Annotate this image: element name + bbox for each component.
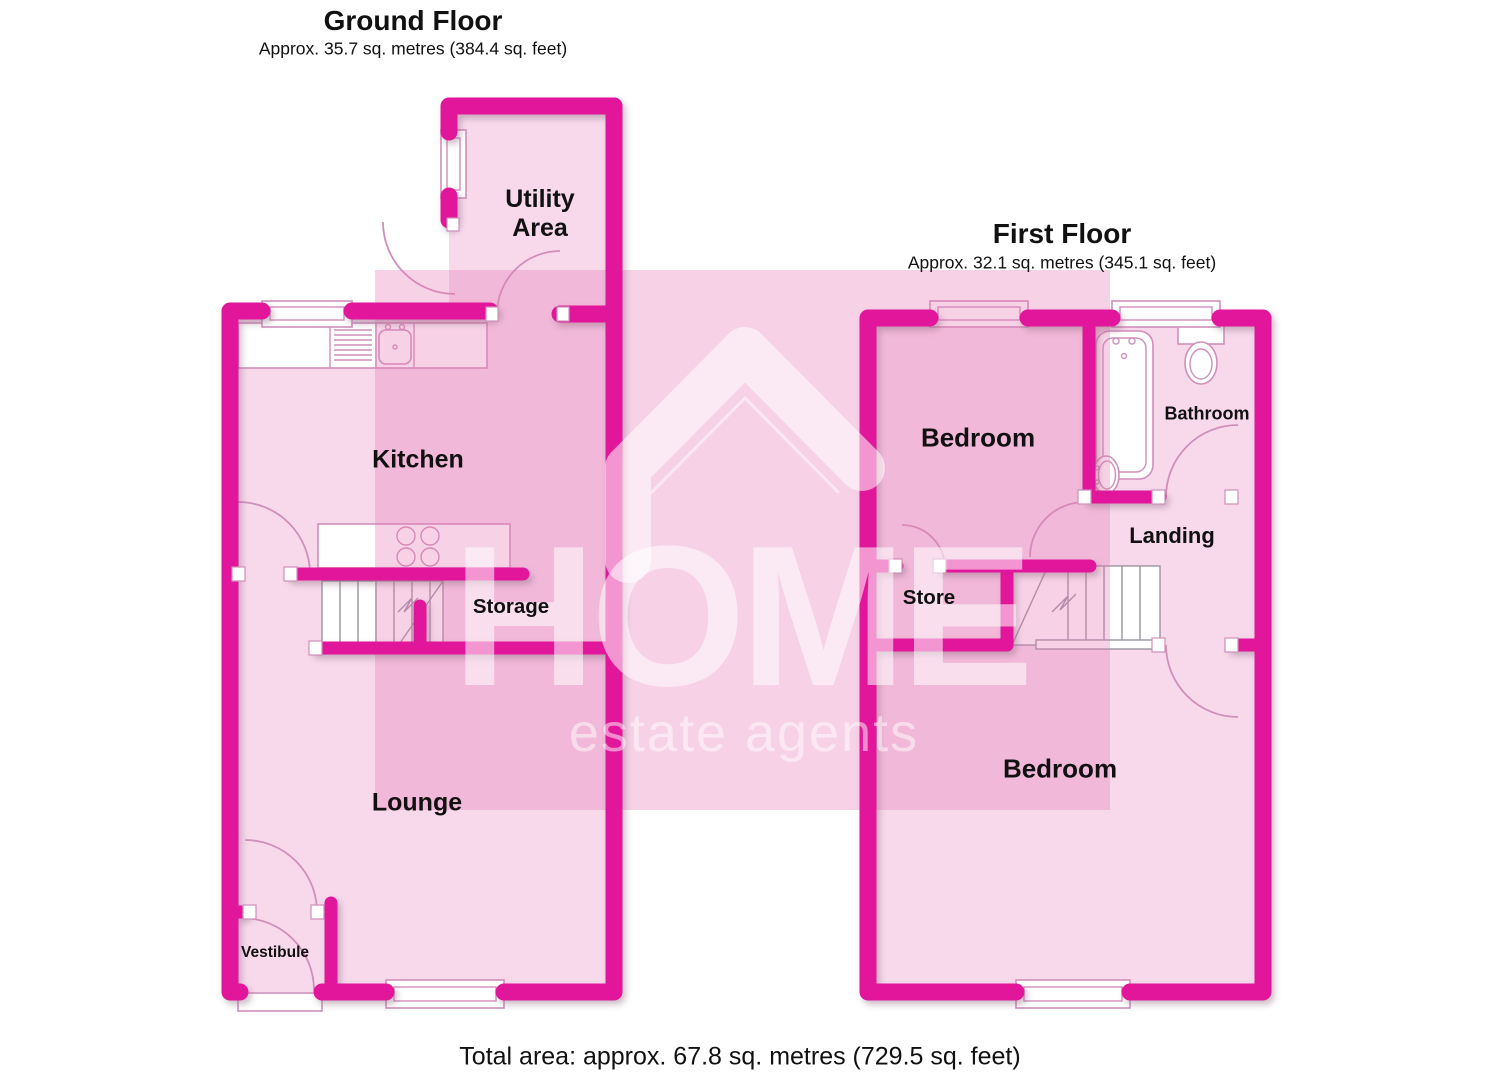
room-label-utility-area: Utility Area <box>475 185 605 243</box>
room-label-storage: Storage <box>473 595 549 619</box>
floorplan-page: HOME estate agents Ground Floor Approx. … <box>0 0 1485 1080</box>
room-label-bedroom-front: Bedroom <box>921 423 1035 454</box>
room-label-bedroom-rear: Bedroom <box>1003 754 1117 785</box>
total-area-text: Total area: approx. 67.8 sq. metres (729… <box>459 1043 1020 1072</box>
room-label-bathroom: Bathroom <box>1165 404 1250 425</box>
room-label-kitchen: Kitchen <box>372 446 464 475</box>
room-label-store: Store <box>903 586 955 610</box>
first-floor-title: First Floor <box>993 218 1131 250</box>
room-label-vestibule: Vestibule <box>241 944 309 962</box>
first-floor-area: Approx. 32.1 sq. metres (345.1 sq. feet) <box>908 253 1216 274</box>
front-door-threshold <box>238 993 322 1011</box>
draining-board <box>334 330 372 360</box>
room-label-landing: Landing <box>1129 523 1215 549</box>
ground-floor-area: Approx. 35.7 sq. metres (384.4 sq. feet) <box>259 39 567 60</box>
watermark-tagline: estate agents <box>569 702 919 764</box>
room-label-lounge: Lounge <box>372 789 462 818</box>
ground-floor-title: Ground Floor <box>324 5 503 37</box>
